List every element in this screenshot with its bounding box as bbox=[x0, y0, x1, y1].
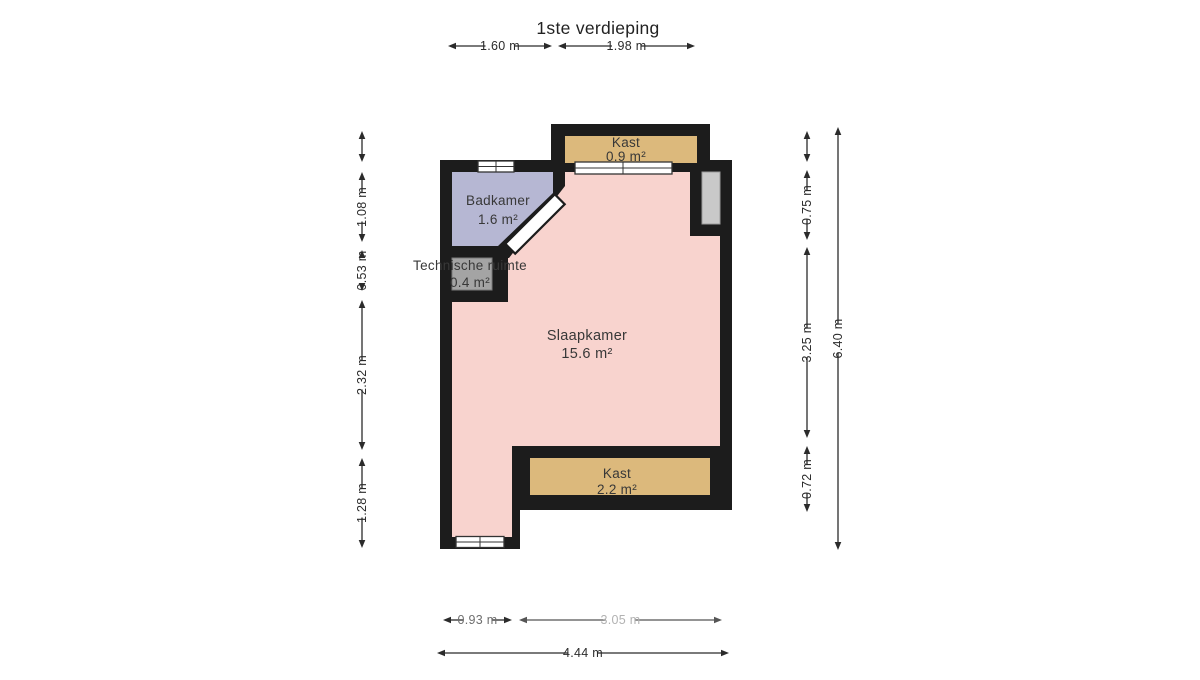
niche-floor bbox=[702, 172, 720, 224]
dimension-group-left: 1.08 m0.53 m2.32 m1.28 m bbox=[355, 131, 369, 548]
svg-text:Slaapkamer: Slaapkamer bbox=[547, 328, 627, 344]
window-bottom bbox=[456, 537, 504, 548]
dimension-group-bottom_inner: 0.93 m3.05 m bbox=[443, 613, 722, 627]
dimension-segment bbox=[804, 131, 811, 162]
dimension-segment: 1.28 m bbox=[355, 458, 369, 548]
svg-text:15.6 m²: 15.6 m² bbox=[561, 346, 612, 362]
dimension-group-right_outer: 6.40 m bbox=[831, 127, 845, 550]
dimension-label: 1.98 m bbox=[606, 39, 646, 53]
svg-text:1.6 m²: 1.6 m² bbox=[478, 212, 518, 227]
dimension-segment: 2.32 m bbox=[355, 300, 369, 450]
svg-text:Kast: Kast bbox=[603, 466, 631, 481]
dimension-label: 4.44 m bbox=[563, 646, 603, 660]
dimension-label: 0.75 m bbox=[800, 185, 814, 225]
dimension-group-right_inner: 0.75 m3.25 m0.72 m bbox=[800, 131, 814, 512]
slaapkamer-floor-strip bbox=[452, 446, 512, 537]
svg-text:Badkamer: Badkamer bbox=[466, 193, 530, 208]
floorplan: Kast 0.9 m² Badkamer 1.6 m² Technische r… bbox=[413, 124, 732, 549]
dimension-segment: 0.72 m bbox=[800, 446, 814, 512]
dimension-label: 1.08 m bbox=[355, 187, 369, 227]
dimension-segment bbox=[359, 131, 366, 162]
dimension-group-bottom_outer: 4.44 m bbox=[437, 646, 729, 660]
dimension-segment: 3.25 m bbox=[800, 247, 814, 438]
dimension-segment: 3.05 m bbox=[519, 613, 722, 627]
dimension-segment: 6.40 m bbox=[831, 127, 845, 550]
dimension-segment: 0.93 m bbox=[443, 613, 512, 627]
dimension-label: 3.05 m bbox=[600, 613, 640, 627]
svg-text:Technische ruimte: Technische ruimte bbox=[413, 258, 527, 273]
dimension-label: 2.32 m bbox=[355, 355, 369, 395]
dimension-label: 0.72 m bbox=[800, 459, 814, 499]
svg-text:2.2 m²: 2.2 m² bbox=[597, 482, 637, 497]
niche-wall-bottom bbox=[690, 224, 732, 236]
dimension-label: 0.93 m bbox=[457, 613, 497, 627]
window-badkamer bbox=[478, 161, 514, 172]
dimension-group-top: 1.60 m1.98 m bbox=[448, 39, 695, 53]
dimension-label: 6.40 m bbox=[831, 318, 845, 358]
dimension-label: 0.53 m bbox=[355, 250, 369, 290]
dimension-segment: 4.44 m bbox=[437, 646, 729, 660]
dimension-label: 1.60 m bbox=[480, 39, 520, 53]
dimension-segment: 0.53 m bbox=[355, 250, 369, 291]
page-title: 1ste verdieping bbox=[536, 18, 659, 38]
svg-text:Kast: Kast bbox=[612, 135, 640, 150]
svg-text:0.4 m²: 0.4 m² bbox=[450, 275, 490, 290]
dimension-segment: 1.08 m bbox=[355, 172, 369, 242]
dimension-label: 3.25 m bbox=[800, 322, 814, 362]
dimension-segment: 1.60 m bbox=[448, 39, 552, 53]
dimension-segment: 1.98 m bbox=[558, 39, 695, 53]
svg-text:0.9 m²: 0.9 m² bbox=[606, 149, 646, 164]
floorplan-canvas: 1ste verdieping bbox=[0, 0, 1200, 675]
dimension-segment: 0.75 m bbox=[800, 170, 814, 240]
dimension-label: 1.28 m bbox=[355, 483, 369, 523]
